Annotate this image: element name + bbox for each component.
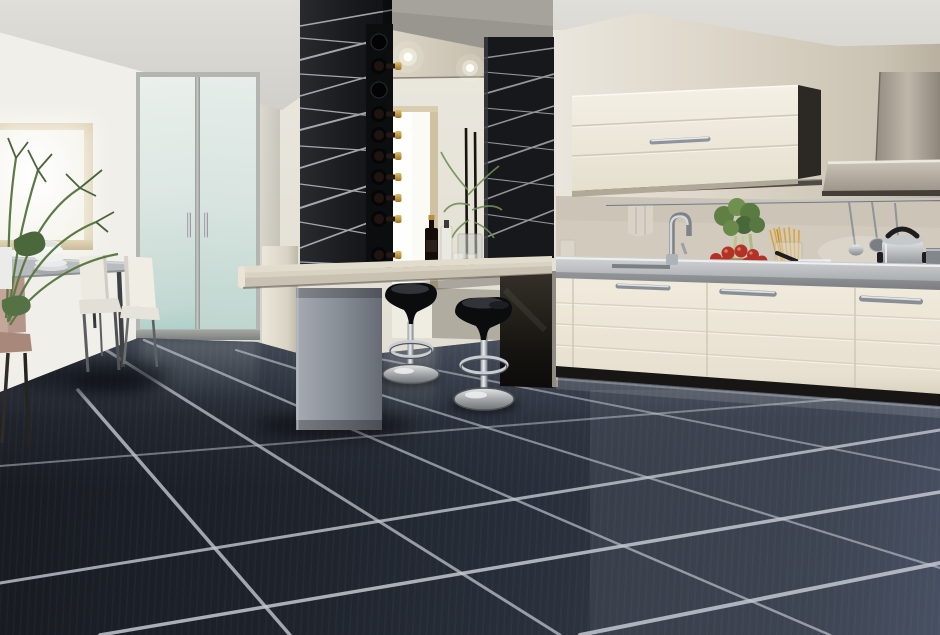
kitchen-towel: [628, 205, 653, 236]
range-hood: [822, 72, 940, 196]
houseplant: [0, 0, 220, 420]
upper-cabinet: [572, 85, 821, 197]
kitchen-photo: [0, 0, 940, 635]
cabinet-side-panel: [798, 85, 821, 179]
big-leaf: [14, 231, 46, 256]
plant-pot: [0, 247, 12, 289]
base-cabinets: [556, 278, 940, 418]
